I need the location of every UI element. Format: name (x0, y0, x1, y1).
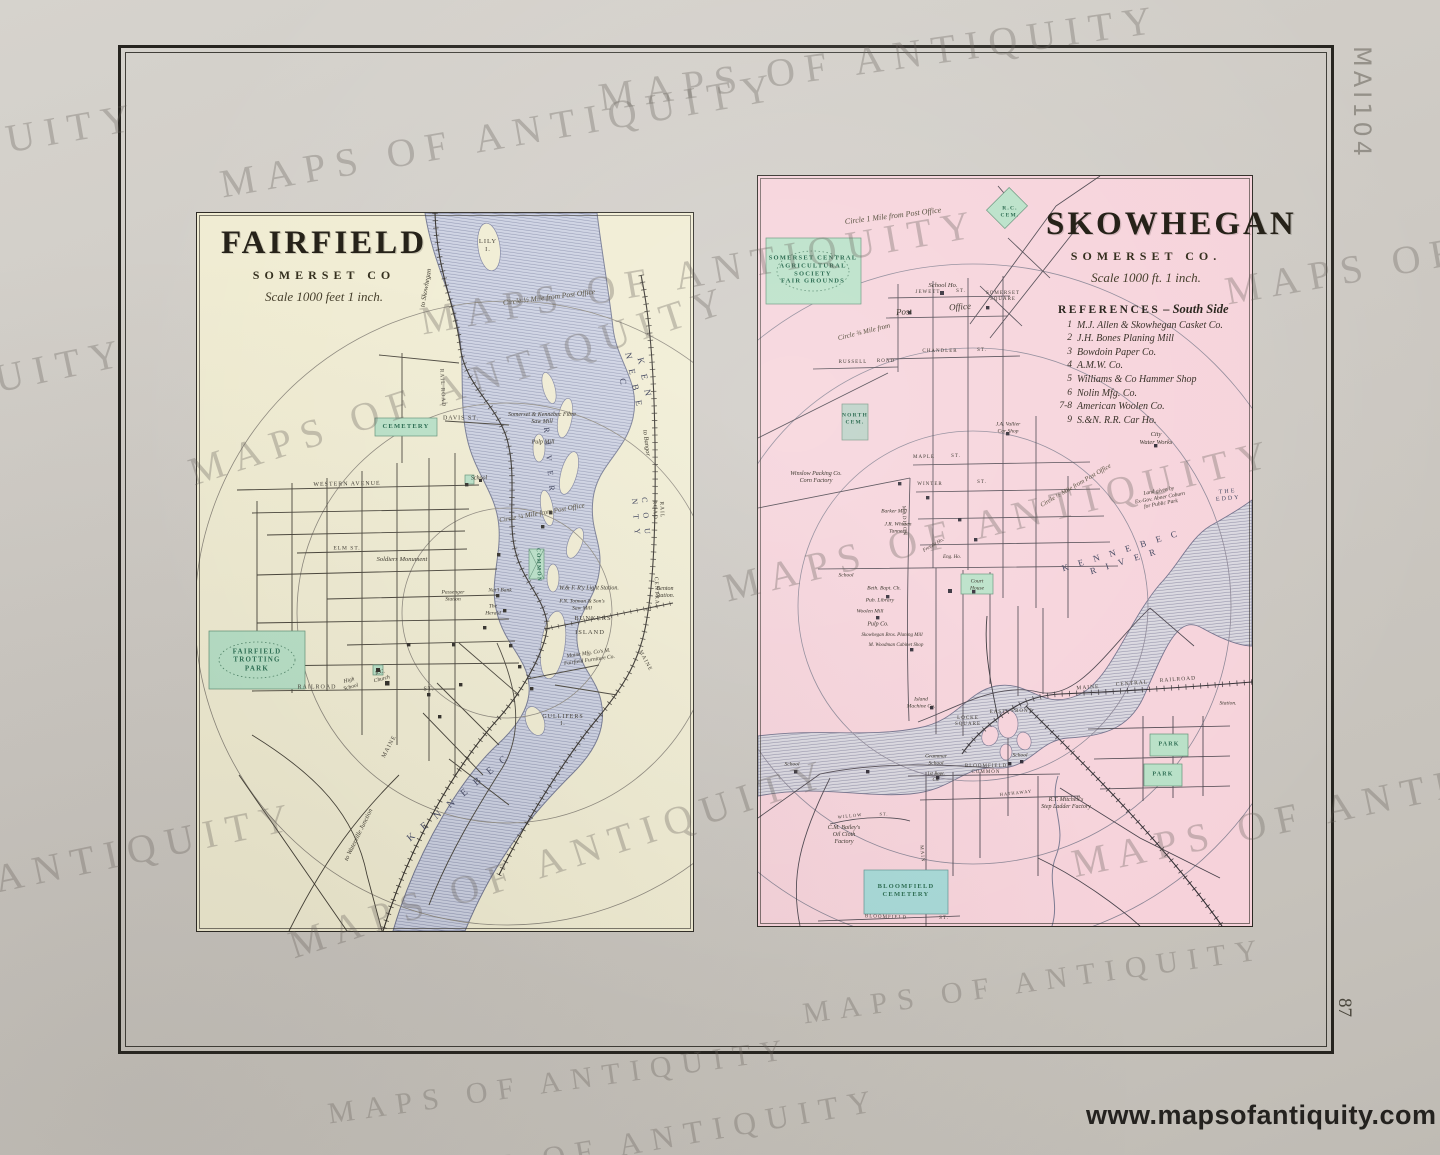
map-label: Barker Mill (881, 509, 907, 516)
map-label: School (1013, 753, 1028, 760)
reference-item: 6Nolin Mfg. Co. (1058, 388, 1248, 399)
references-heading: REFERENCES – South Side (1058, 302, 1248, 317)
fairfield-map-art (197, 213, 693, 931)
map-label: Soldiers Monument (377, 556, 428, 564)
map-label: WINTER (917, 482, 942, 488)
map-label: Beth. Bapt. Ch. (867, 586, 901, 593)
map-label: School (471, 475, 487, 482)
reference-item: 9S.&N. R.R. Car Ho. (1058, 415, 1248, 426)
map-label: ST. (879, 811, 888, 816)
reference-item: 2J.H. Bones Planing Mill (1058, 333, 1248, 344)
map-label: RAILROAD (298, 684, 337, 691)
map-label: FRONT (1011, 709, 1032, 715)
map-label: BUNKERS (574, 615, 611, 623)
map-label: MAPLE (913, 455, 935, 461)
map-label: Nat'l Bank (488, 588, 511, 595)
map-label: J.A. Vallier Car Shop (996, 421, 1021, 434)
map-label: City Water Works (1140, 431, 1173, 447)
map-label: ST. (951, 454, 961, 460)
map-label: SOMERSET SQUARE (986, 291, 1020, 303)
map-label: Eng. Ho. (943, 555, 961, 561)
reference-item: 7-8American Woolen Co. (1058, 401, 1248, 412)
map-label: ST. (423, 686, 434, 693)
fairfield-scale: Scale 1000 feet 1 inch. (213, 289, 435, 305)
skowhegan-map-art (758, 176, 1252, 926)
references-heading-label: REFERENCES (1058, 304, 1160, 316)
map-label: LILY I. (479, 238, 497, 254)
skowhegan-map-panel: SKOWHEGAN SOMERSET CO. Scale 1000 ft. 1 … (757, 175, 1253, 927)
map-label: The Herald (485, 603, 501, 616)
map-label: Pulp Mill (532, 439, 555, 446)
fairfield-subtitle: SOMERSET CO (213, 268, 435, 283)
reference-item: 4A.M.W. Co. (1058, 360, 1248, 371)
map-label: School (839, 573, 854, 580)
map-label: Station. (1220, 701, 1237, 708)
map-label: ST. (956, 289, 966, 295)
map-label: Winslow Packing Co. Corn Factory (790, 471, 842, 485)
map-label: COMMON (534, 548, 542, 582)
pencil-inventory-note: MAI104 (1348, 46, 1376, 160)
fairfield-title-block: FAIRFIELD SOMERSET CO Scale 1000 feet 1 … (213, 227, 435, 305)
map-label: THE EDDY (1215, 488, 1241, 504)
map-label: C.M. Bailey's Oil Cloth Factory (828, 825, 860, 847)
map-label: Passenger Station (442, 589, 465, 602)
map-label: CEMETERY (383, 423, 430, 431)
skowhegan-scale: Scale 1000 ft. 1 inch. (1046, 270, 1246, 286)
map-label: Grammar School (925, 753, 947, 766)
map-label: Benton Station. (656, 586, 675, 600)
map-label: FAIRFIELD TROTTING PARK (233, 647, 282, 672)
fairfield-title: FAIRFIELD (213, 227, 435, 260)
fairfield-map-panel: FAIRFIELD SOMERSET CO Scale 1000 feet 1 … (196, 212, 694, 932)
map-label: BLOOMFIELD COMMON (965, 764, 1007, 776)
map-label: ISLAND (575, 629, 605, 637)
map-label: J.R. Whitten Tannery (884, 521, 911, 534)
map-label: BLOOMFIELD CEMETERY (878, 883, 935, 899)
map-label: Island Machine Co. (907, 696, 935, 709)
map-label: Woolen Mill (857, 609, 884, 616)
map-label: Pulp Co. (867, 621, 888, 628)
map-label: EAST (990, 710, 1007, 716)
reference-item: 3Bowdoin Paper Co. (1058, 347, 1248, 358)
maps-of-antiquity-watermark: MAPS OF ANTIQUITY (396, 1081, 883, 1155)
map-label: RAIL ROAD (651, 492, 665, 527)
map-label: Office (949, 301, 972, 313)
map-label: ST. (939, 916, 949, 922)
map-label: Skowhegan Bros. Planing Mill (861, 633, 922, 639)
map-label: 1st Bapt. Ch. (927, 772, 945, 784)
maps-of-antiquity-watermark: MAPS OF ANTIQUITY (0, 328, 133, 492)
map-label: School Ho. (929, 282, 958, 290)
reference-item: 5Williams & Co Hammer Shop (1058, 374, 1248, 385)
references-block: REFERENCES – South Side 1M.J. Allen & Sk… (1058, 302, 1248, 426)
map-label: Court House (970, 578, 984, 591)
map-label: PARK (1152, 771, 1173, 778)
map-label: R.C. CEM. (1000, 205, 1019, 218)
website-watermark: www.mapsofantiquity.com (1086, 1100, 1437, 1131)
map-label: PARK (1158, 741, 1179, 748)
map-label: F.N. Totman & Son's Saw Mill (559, 598, 604, 611)
references-list: 1M.J. Allen & Skowhegan Casket Co.2J.H. … (1058, 320, 1248, 426)
map-label: DAVIS ST. (443, 415, 479, 422)
map-label: RUSSELL (839, 360, 868, 366)
map-label: NORTH CEM. (842, 412, 868, 425)
map-label: ST. (977, 480, 987, 486)
map-label: Pub. Library (866, 598, 894, 605)
map-label: ROAD (877, 359, 895, 365)
skowhegan-subtitle: SOMERSET CO. (1046, 249, 1246, 264)
map-label: LOCKE SQUARE (955, 716, 981, 728)
map-label: M. Woodman Cabinet Shop (869, 643, 924, 649)
skowhegan-title-block: SKOWHEGAN SOMERSET CO. Scale 1000 ft. 1 … (1046, 208, 1246, 286)
map-label: WESTERN AVENUE (313, 481, 381, 489)
map-label: JEWETT (916, 290, 941, 296)
map-label: ELM ST. (333, 546, 360, 553)
skowhegan-title: SKOWHEGAN (1046, 208, 1246, 241)
map-label: School (785, 762, 800, 769)
scanned-atlas-page: FAIRFIELD SOMERSET CO Scale 1000 feet 1 … (0, 0, 1440, 1155)
map-label: Post (896, 306, 913, 318)
map-label: Somerset & Kennebec Fibre Saw Mill (508, 412, 576, 426)
reference-item: 1M.J. Allen & Skowhegan Casket Co. (1058, 320, 1248, 331)
references-heading-side: – South Side (1163, 302, 1228, 316)
map-label: ST. (977, 348, 987, 354)
map-label: GULLIFERS I. (542, 714, 583, 728)
map-label: CHANDLER (922, 349, 957, 355)
map-label: W.& F. R'y Light Station. (559, 585, 619, 592)
page-number: 87 (1333, 998, 1355, 1017)
map-label: SOMERSET CENTRAL AGRICULTURAL SOCIETY FA… (769, 254, 858, 285)
map-label: R.T. Mitchell's Step Ladder Factory (1041, 797, 1091, 811)
